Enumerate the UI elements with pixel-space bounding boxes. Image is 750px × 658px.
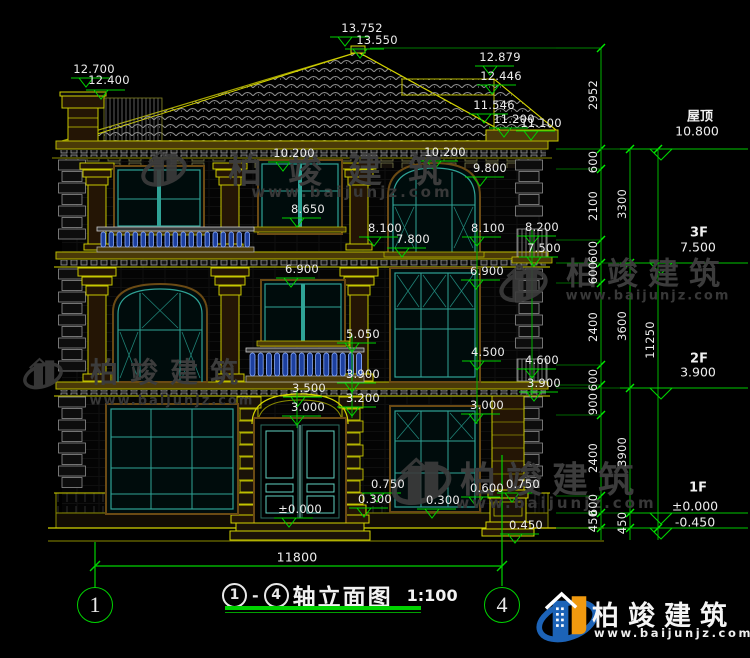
title-underline — [225, 606, 421, 610]
chain-dimension: 2100 — [586, 191, 600, 221]
chain-dimension: 600 — [586, 151, 600, 174]
elevation-label: 3.900 — [527, 376, 561, 390]
floor-elevation: 10.800 — [675, 124, 719, 139]
elevation-label: 4.500 — [471, 345, 505, 359]
elevation-label: 0.750 — [371, 477, 405, 491]
title-dash: - — [252, 586, 259, 605]
cad-elevation-canvas: 柏竣建筑www.baijunjz.com柏竣建筑www.baijunjz.com… — [0, 0, 750, 658]
floor-name: 屋顶 — [687, 106, 713, 125]
annotation-layer: 13.75213.55012.70012.40012.87912.44611.5… — [0, 0, 750, 658]
axis-number-1: 1 — [90, 592, 101, 618]
elevation-label: 3.500 — [292, 381, 326, 395]
elevation-label: 0.750 — [506, 477, 540, 491]
elevation-label: ±0.000 — [278, 502, 322, 516]
elevation-label: 6.900 — [470, 264, 504, 278]
brand-url: www.baijunjz.com — [594, 626, 750, 640]
elevation-label: 10.200 — [424, 145, 465, 159]
axis-bubble-1: 1 — [77, 587, 113, 623]
elevation-label: 8.100 — [471, 221, 505, 235]
elevation-label: 12.400 — [88, 73, 129, 87]
elevation-label: 3.900 — [346, 367, 380, 381]
elevation-label: 10.200 — [273, 146, 314, 160]
elevation-label: 7.500 — [527, 241, 561, 255]
chain-dimension: 3300 — [615, 189, 629, 219]
axis-bubble-4: 4 — [484, 587, 520, 623]
elevation-label: 9.800 — [473, 161, 507, 175]
elevation-label: 0.300 — [426, 493, 460, 507]
elevation-label: 11.546 — [473, 98, 514, 112]
chain-dimension: 3600 — [615, 311, 629, 341]
chain-dimension: 450 — [615, 512, 629, 535]
elevation-label: 4.600 — [525, 353, 559, 367]
elevation-label: 0.300 — [358, 492, 392, 506]
floor-elevation: ±0.000 — [672, 499, 718, 514]
title-underline-thin — [225, 612, 421, 613]
axis-circle-from: 1 — [222, 583, 247, 608]
chain-dimension: 600 — [586, 241, 600, 264]
elevation-label: 6.900 — [285, 262, 319, 276]
elevation-label: 0.600 — [470, 481, 504, 495]
chain-dimension: 3900 — [615, 437, 629, 467]
floor-elevation: -0.450 — [675, 515, 715, 530]
floor-name: 3F — [690, 226, 708, 241]
elevation-label: 12.879 — [479, 50, 520, 64]
elevation-label: 3.000 — [470, 398, 504, 412]
elevation-label: 0.450 — [509, 518, 543, 532]
floor-elevation: 3.900 — [680, 365, 716, 380]
elevation-label: 3.000 — [291, 400, 325, 414]
chain-dimension: 900 — [586, 393, 600, 416]
title-scale: 1:100 — [407, 586, 458, 605]
elevation-label: 11.100 — [520, 116, 561, 130]
elevation-label: 5.050 — [346, 327, 380, 341]
elevation-label: 13.550 — [356, 33, 397, 47]
chain-dimension: 2400 — [586, 443, 600, 473]
floor-elevation: 7.500 — [680, 240, 716, 255]
floor-name: 1F — [689, 481, 707, 496]
elevation-label: 8.650 — [291, 202, 325, 216]
chain-dimension: 2952 — [586, 80, 600, 110]
chain-dimension: 600 — [586, 262, 600, 285]
axis-number-4: 4 — [497, 592, 508, 618]
elevation-label: 12.446 — [480, 69, 521, 83]
chain-dimension: 11250 — [643, 321, 657, 359]
chain-dimension: 600 — [586, 369, 600, 392]
elevation-label: 3.200 — [346, 391, 380, 405]
elevation-label: 8.200 — [525, 220, 559, 234]
elevation-label: 7.800 — [396, 232, 430, 246]
chain-dimension: 450 — [586, 510, 600, 533]
chain-dimension: 2400 — [586, 312, 600, 342]
axis-circle-to: 4 — [264, 583, 289, 608]
